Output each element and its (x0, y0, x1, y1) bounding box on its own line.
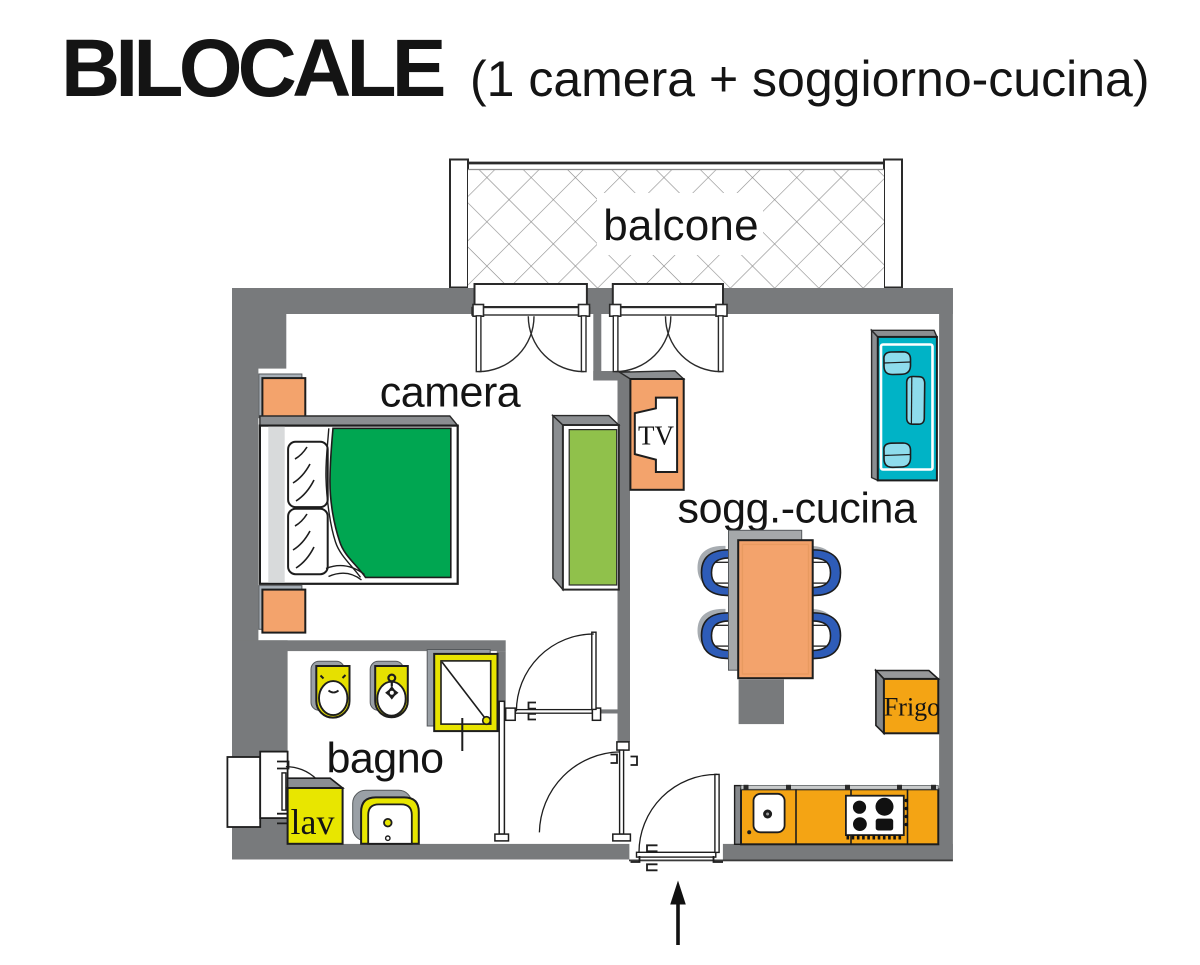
svg-text:sogg.-cucina: sogg.-cucina (678, 485, 917, 533)
svg-text:balcone: balcone (603, 201, 759, 250)
svg-text:(1 camera + soggiorno-cucina): (1 camera + soggiorno-cucina) (470, 51, 1150, 107)
svg-text:lav: lav (291, 802, 335, 842)
svg-text:camera: camera (380, 369, 521, 417)
svg-text:BILOCALE: BILOCALE (61, 23, 444, 114)
svg-text:bagno: bagno (326, 735, 443, 783)
svg-text:Frigo: Frigo (884, 693, 940, 722)
svg-text:TV: TV (638, 421, 674, 451)
